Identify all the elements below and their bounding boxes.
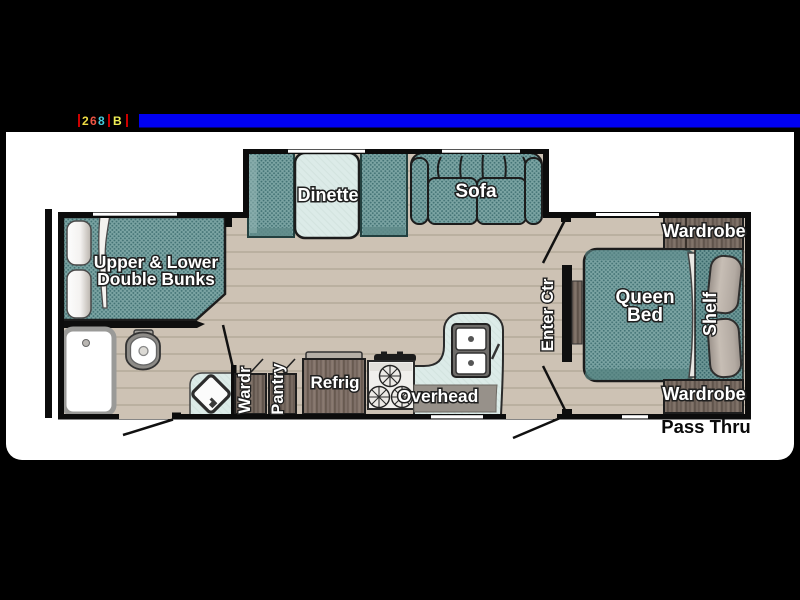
svg-text:Enter Ctr: Enter Ctr — [538, 278, 557, 351]
svg-text:B: B — [113, 114, 122, 128]
svg-text:Wardrobe: Wardrobe — [662, 221, 745, 241]
svg-text:Bed: Bed — [627, 305, 663, 326]
svg-text:6: 6 — [90, 114, 97, 128]
svg-text:Shelf: Shelf — [700, 291, 720, 336]
svg-text:Sofa: Sofa — [455, 181, 497, 202]
svg-text:2: 2 — [82, 114, 89, 128]
svg-text:Wardr: Wardr — [236, 366, 254, 414]
svg-text:Pantry: Pantry — [269, 363, 287, 415]
svg-text:Refrig: Refrig — [310, 373, 359, 392]
svg-text:Dinette: Dinette — [297, 185, 358, 205]
svg-text:Overhead: Overhead — [398, 386, 479, 406]
svg-text:8: 8 — [98, 114, 105, 128]
svg-text:Double Bunks: Double Bunks — [97, 269, 215, 289]
svg-text:Pass Thru: Pass Thru — [661, 416, 750, 437]
svg-text:Wardrobe: Wardrobe — [662, 384, 745, 404]
